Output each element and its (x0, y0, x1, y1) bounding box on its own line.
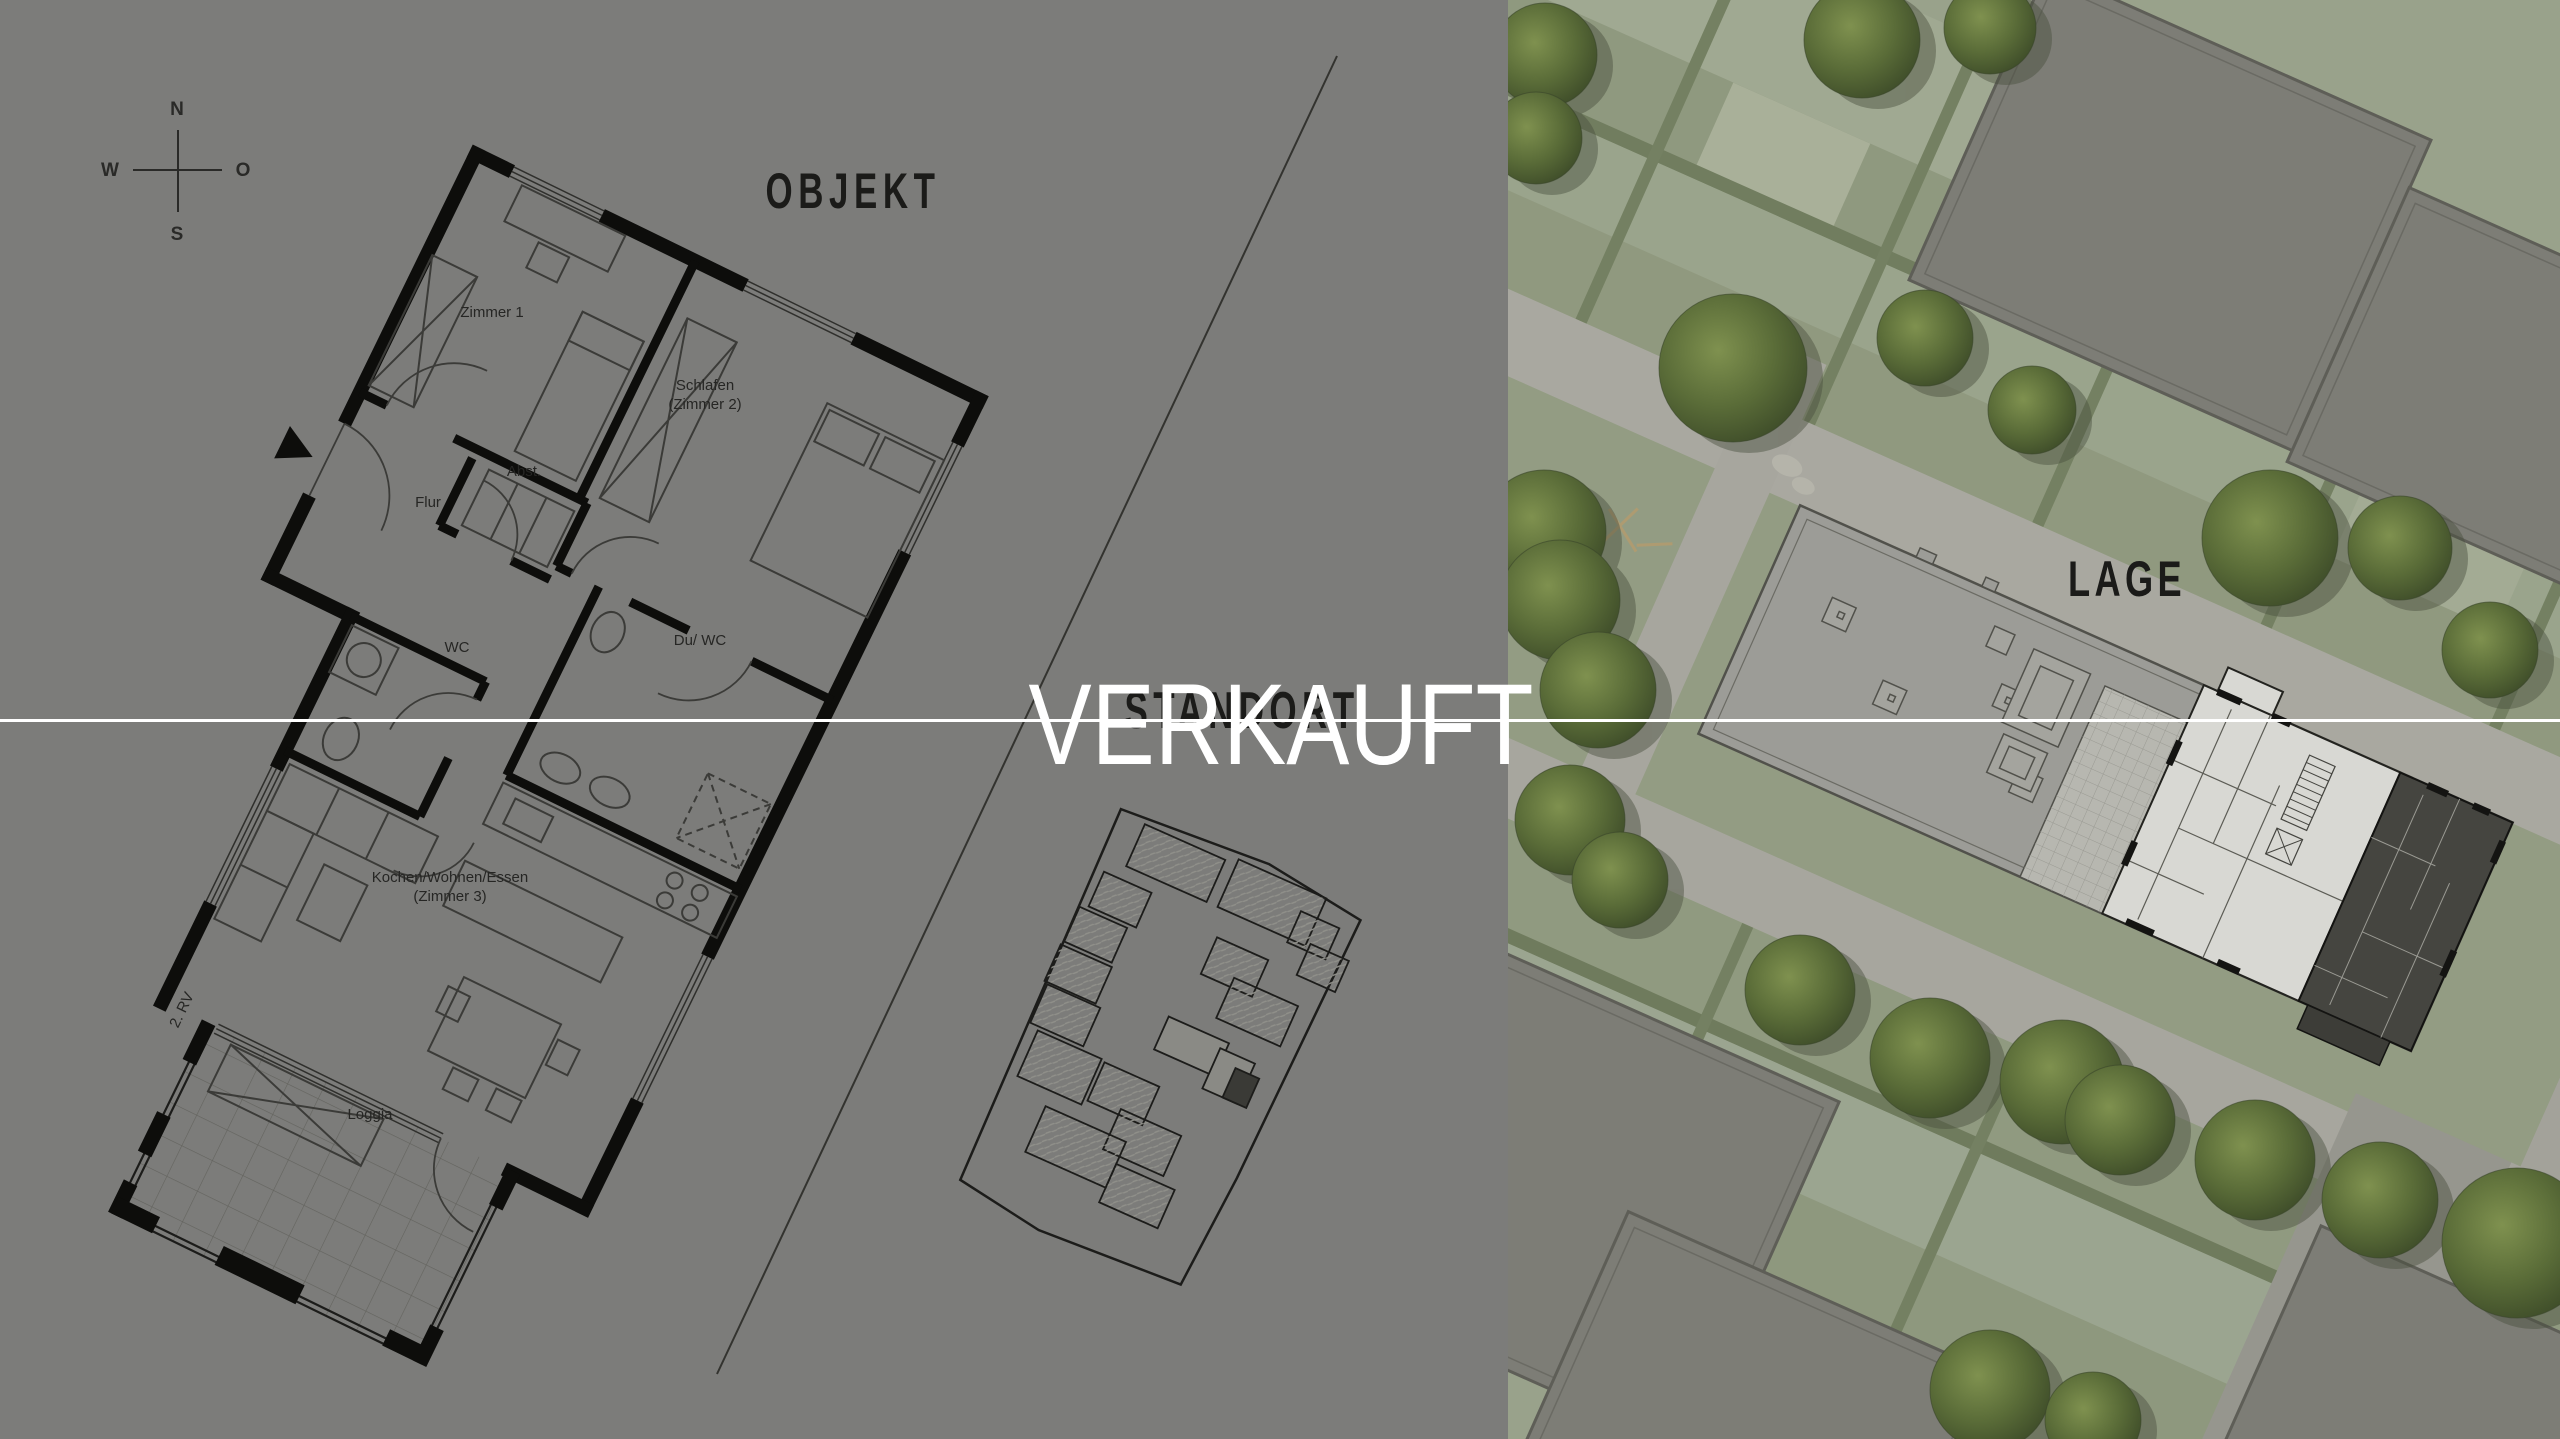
compass-n: N (170, 99, 184, 120)
room-label-wc: WC (445, 639, 470, 656)
lage-title: LAGE (2068, 551, 2186, 607)
sold-property-slide: LAGE N W O S OBJEKT (0, 0, 2560, 1439)
slide-canvas: LAGE N W O S OBJEKT (0, 0, 2560, 1439)
room-label-wohnen2: (Zimmer 3) (413, 888, 486, 905)
room-label-abst: Abst. (507, 463, 541, 480)
room-label-loggia: Loggia (347, 1106, 393, 1123)
room-label-schlafen1: Schlafen (676, 377, 734, 394)
room-label-duwc: Du/ WC (674, 632, 727, 649)
room-label-wohnen1: Kochen/Wohnen/Essen (372, 869, 529, 886)
room-label-schlafen2: (Zimmer 2) (668, 396, 741, 413)
room-label-zimmer1: Zimmer 1 (460, 304, 523, 321)
sold-status-label: VERKAUFT (1029, 661, 1534, 789)
compass-w: W (101, 160, 119, 181)
compass-o: O (236, 160, 251, 181)
compass-s: S (171, 224, 184, 245)
room-label-flur: Flur (415, 494, 441, 511)
objekt-title: OBJEKT (766, 163, 941, 219)
